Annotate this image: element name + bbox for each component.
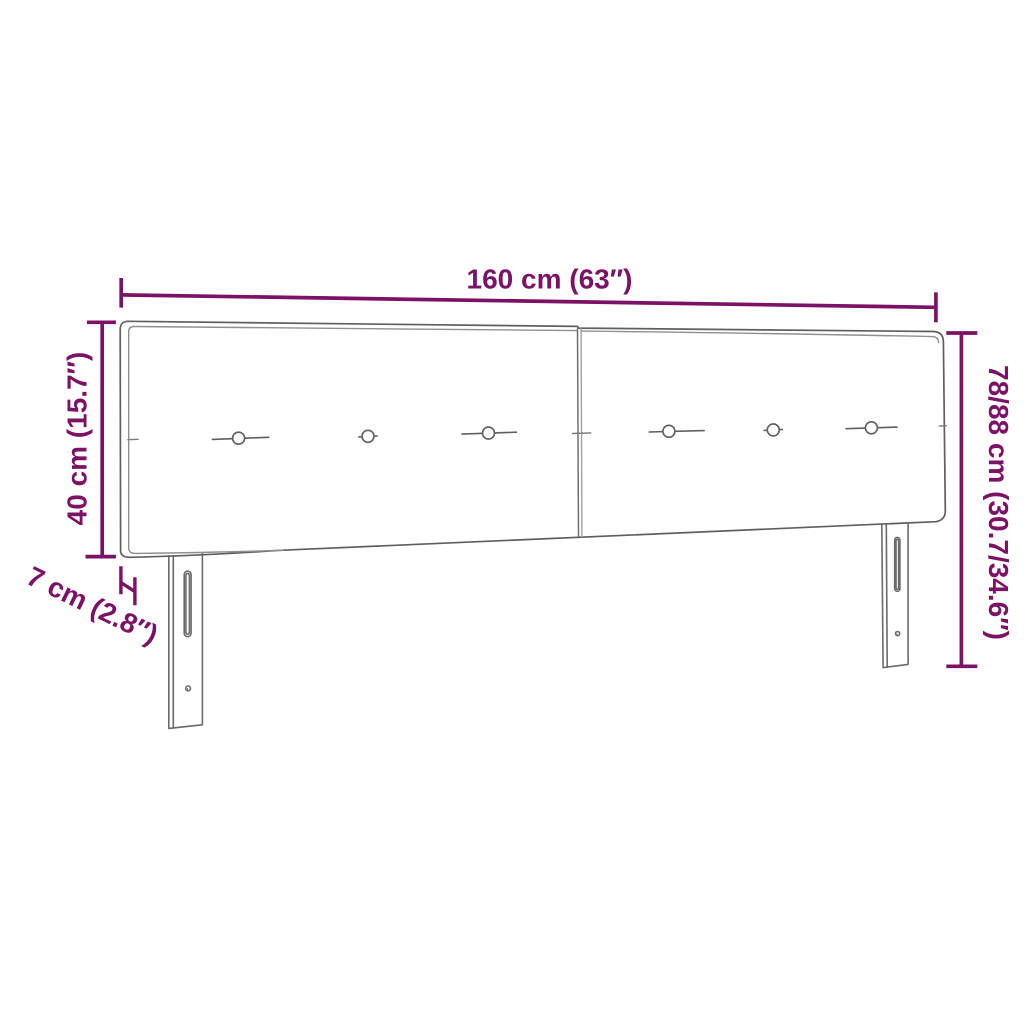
svg-text:160 cm (63″): 160 cm (63″): [467, 264, 633, 295]
svg-text:40 cm (15.7″): 40 cm (15.7″): [62, 352, 93, 526]
svg-text:78/88 cm (30.7/34.6″): 78/88 cm (30.7/34.6″): [983, 365, 1014, 640]
